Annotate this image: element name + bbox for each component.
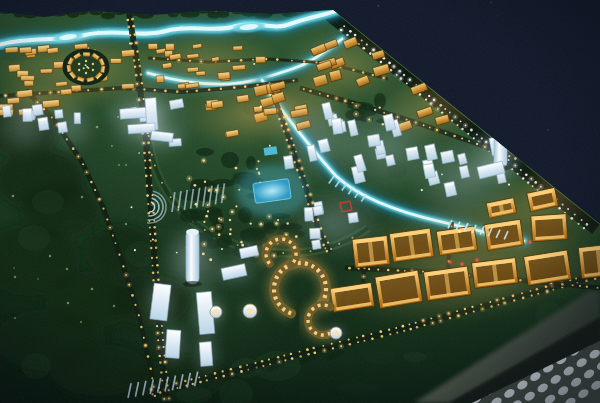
city-model-photo: [0, 0, 600, 403]
scene-svg: [0, 0, 600, 403]
vignette: [0, 0, 600, 403]
